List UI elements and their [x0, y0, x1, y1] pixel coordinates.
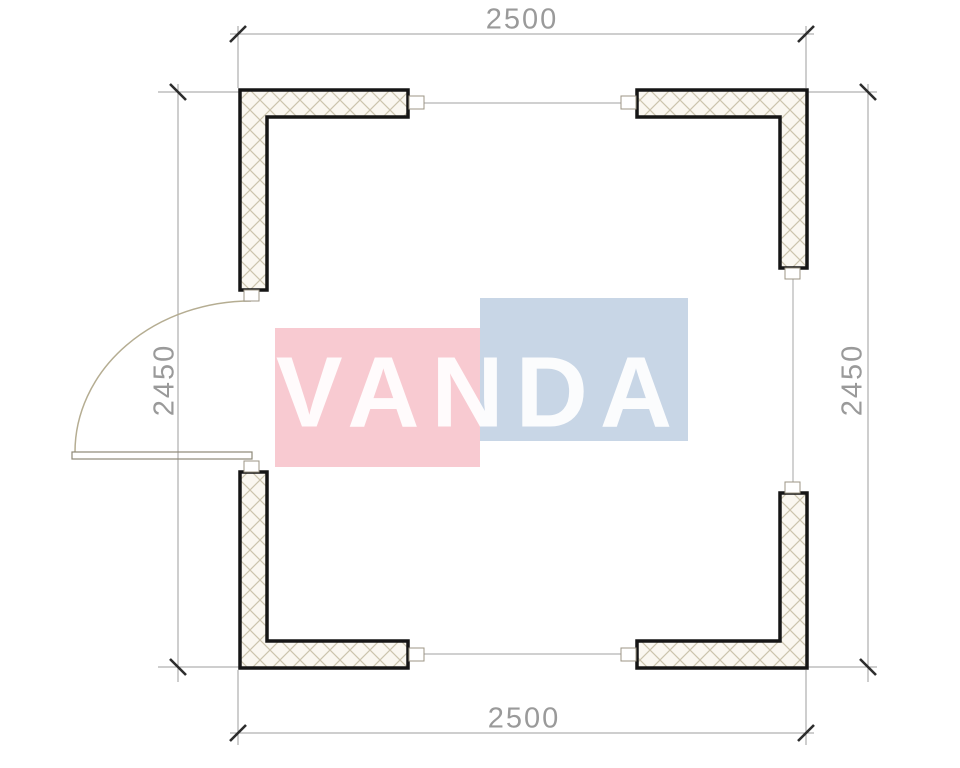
end-cap-top-right-vertical [785, 268, 800, 279]
door-leaf [72, 452, 252, 459]
dimension-label-left: 2450 [149, 344, 182, 417]
wall-top-left [240, 90, 408, 290]
floor-plan-canvas: VANDA [0, 0, 960, 768]
walls [240, 90, 807, 668]
end-cap-top-right-horizontal [621, 96, 636, 109]
dimension-label-top: 2500 [486, 4, 559, 37]
end-cap-bottom-left-vertical [244, 461, 259, 472]
dimension-label-right: 2450 [837, 344, 870, 417]
end-cap-bottom-right-vertical [785, 482, 800, 493]
wall-top-right [637, 90, 807, 268]
dimension-label-bottom: 2500 [488, 703, 561, 736]
wall-end-caps [244, 96, 800, 661]
floor-plan-drawing [0, 0, 960, 768]
dimension-lines [178, 34, 868, 733]
end-cap-bottom-right-horizontal [621, 648, 636, 661]
end-cap-top-left-horizontal [409, 96, 424, 109]
dimension-ticks [170, 26, 876, 741]
end-cap-bottom-left-horizontal [409, 648, 424, 661]
wall-bottom-left [240, 472, 408, 668]
end-cap-top-left-vertical [244, 290, 259, 301]
wall-connector-lines [424, 103, 793, 654]
wall-bottom-right [637, 493, 807, 668]
